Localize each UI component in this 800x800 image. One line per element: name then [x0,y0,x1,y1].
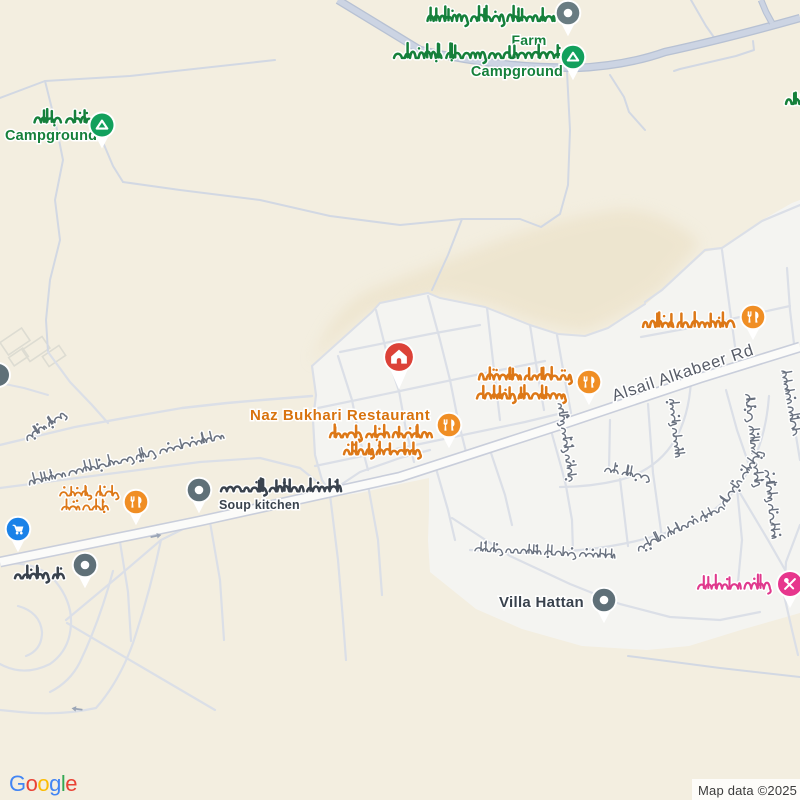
svg-text:Map data ©2025: Map data ©2025 [698,783,797,798]
svg-text:Soup kitchen: Soup kitchen [219,498,300,512]
svg-text:Google: Google [9,771,77,796]
svg-text:Naz Bukhari Restaurant: Naz Bukhari Restaurant [250,407,430,424]
svg-text:Campground: Campground [5,128,97,144]
svg-text:Villa Hattan: Villa Hattan [499,594,584,611]
svg-text:Campground: Campground [471,64,563,80]
